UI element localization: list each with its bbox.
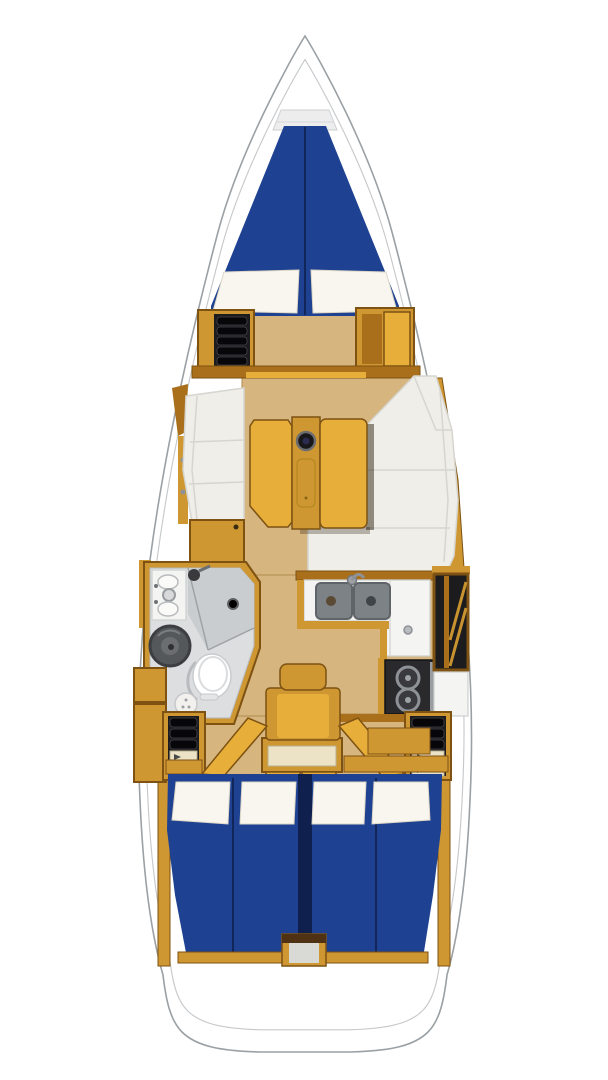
head-vanity xyxy=(152,570,186,620)
v-berth-pillow-starboard xyxy=(311,270,397,313)
unit-shelf-1 xyxy=(412,718,444,727)
companionway-box xyxy=(282,934,326,966)
forward-shelf-unit xyxy=(198,310,254,372)
shelf-5 xyxy=(217,357,247,365)
wardrobe-open-section xyxy=(362,314,382,364)
forward-wardrobe xyxy=(356,308,414,370)
v-berth-pillow-port xyxy=(213,270,299,313)
floorplan-canvas xyxy=(0,0,608,1080)
boat-floorplan xyxy=(0,0,608,1080)
nav-seat-cushion xyxy=(277,694,329,738)
forward-bulkhead-step xyxy=(246,372,366,378)
port-settee xyxy=(183,388,244,522)
forward-cabin-floor xyxy=(246,314,364,370)
port-berth-pillow-2 xyxy=(240,782,296,824)
port-hull-locker-upper xyxy=(134,668,166,702)
counter-bottom-trim xyxy=(297,621,389,629)
port-berth-foot-trim xyxy=(178,952,298,963)
table-leaf-port xyxy=(250,420,292,527)
port-trim-fitting-2 xyxy=(181,490,186,495)
wardrobe-door xyxy=(384,312,410,366)
counter-knob xyxy=(404,626,412,634)
port-hull-locker-lower xyxy=(134,704,166,782)
salon-table xyxy=(250,417,374,534)
starboard-berth-foot-trim xyxy=(312,952,428,963)
shower-drain xyxy=(228,599,238,609)
unit-shelf-1 xyxy=(170,718,197,727)
shelf-4 xyxy=(217,347,247,355)
nav-headrest xyxy=(280,664,326,690)
port-headboard xyxy=(166,760,202,774)
vanity-basin-2 xyxy=(158,602,178,616)
galley-top-beam xyxy=(296,571,438,580)
starboard-headboard xyxy=(344,756,448,772)
starboard-berth-pillow-1 xyxy=(312,782,366,824)
starboard-headboard-step xyxy=(368,728,430,754)
counter-left-trim xyxy=(297,580,304,624)
counter-inner-trim xyxy=(380,621,387,661)
stove-left-trim xyxy=(378,658,385,714)
vanity-knob-1 xyxy=(154,584,158,588)
burner-2-center xyxy=(405,697,411,703)
sink-right-drain xyxy=(366,596,376,606)
centerline-bulkhead xyxy=(297,774,313,958)
vanity-knob-2 xyxy=(154,600,158,604)
tray-dot xyxy=(305,497,308,500)
refrigerator xyxy=(434,672,468,716)
port-berth-pillow-1 xyxy=(172,782,230,824)
cup-holder-center xyxy=(303,438,310,445)
vanity-faucet-ring xyxy=(163,589,175,601)
starboard-berth-pillow-2 xyxy=(372,782,430,824)
box-top-bar xyxy=(282,934,326,943)
vanity-basin-1 xyxy=(158,575,178,589)
pantry-divider xyxy=(444,576,449,668)
toilet-hinge xyxy=(200,694,218,700)
burner-1-center xyxy=(405,675,411,681)
nav-desk-shelf xyxy=(268,746,336,766)
sink-left-drain xyxy=(326,596,336,606)
box-interior xyxy=(289,943,319,963)
unit-shelf-3 xyxy=(170,740,197,749)
shelf-3 xyxy=(217,337,247,345)
stove xyxy=(378,658,437,714)
cabinet-latch xyxy=(234,525,239,530)
shelf-2 xyxy=(217,327,247,335)
unit-shelf-2 xyxy=(170,729,197,738)
shelf-1 xyxy=(217,317,247,325)
table-leaf-starboard xyxy=(320,419,367,528)
round-basin xyxy=(150,626,190,666)
